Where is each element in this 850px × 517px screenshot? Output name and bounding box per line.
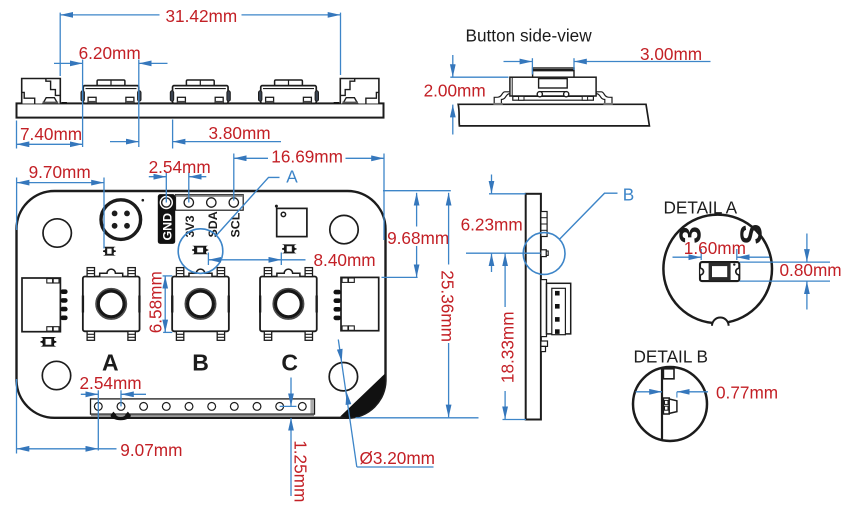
svg-text:25.36mm: 25.36mm [437,270,457,342]
svg-text:B: B [623,184,634,204]
svg-text:9.68mm: 9.68mm [387,228,449,248]
svg-text:SCL: SCL [229,212,243,237]
svg-text:C: C [281,349,298,375]
svg-text:6.20mm: 6.20mm [79,43,141,63]
svg-text:Button side-view: Button side-view [466,25,593,45]
svg-text:2.54mm: 2.54mm [80,373,142,393]
svg-text:B: B [192,349,209,375]
svg-text:DETAIL B: DETAIL B [634,347,709,367]
svg-text:9.07mm: 9.07mm [120,440,182,460]
svg-text:16.69mm: 16.69mm [271,147,343,167]
svg-text:A: A [286,167,298,187]
svg-text:6.23mm: 6.23mm [461,214,523,234]
svg-text:31.42mm: 31.42mm [166,6,238,26]
svg-text:2.54mm: 2.54mm [149,157,211,177]
svg-text:2.00mm: 2.00mm [424,81,486,101]
svg-text:GND: GND [160,213,174,241]
svg-text:7.40mm: 7.40mm [20,124,82,144]
svg-text:Ø3.20mm: Ø3.20mm [360,448,435,468]
svg-text:1.60mm: 1.60mm [684,238,746,258]
svg-text:3.00mm: 3.00mm [640,44,702,64]
svg-text:0.77mm: 0.77mm [716,382,778,402]
svg-text:18.33mm: 18.33mm [497,311,517,383]
svg-text:9.70mm: 9.70mm [29,162,91,182]
svg-text:8.40mm: 8.40mm [314,250,376,270]
svg-text:1.25mm: 1.25mm [290,440,310,502]
svg-text:0.80mm: 0.80mm [780,260,842,280]
svg-text:6.58mm: 6.58mm [145,271,165,333]
svg-text:A: A [102,349,119,375]
svg-text:3.80mm: 3.80mm [209,123,271,143]
